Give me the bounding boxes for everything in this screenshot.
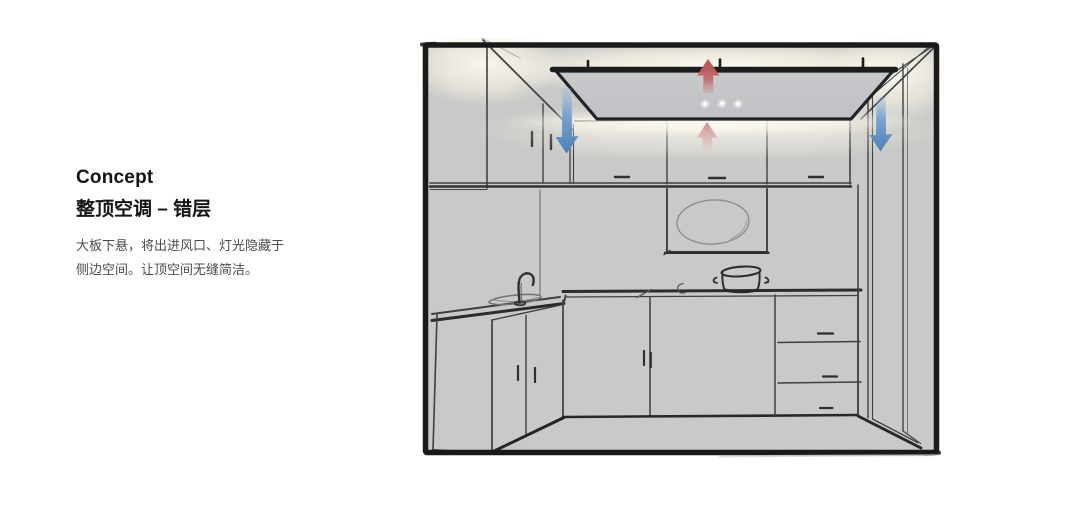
panel-indicator-lights (701, 99, 743, 109)
concept-text-block: Concept 整顶空调 – 错层 大板下悬，将出进风口、灯光隐藏于 侧边空间。… (76, 165, 336, 282)
kitchen-sketch-svg (420, 38, 944, 462)
slide-canvas: Concept 整顶空调 – 错层 大板下悬，将出进风口、灯光隐藏于 侧边空间。… (0, 0, 1080, 523)
description-line-1: 大板下悬，将出进风口、灯光隐藏于 (76, 234, 336, 258)
suspended-ac-panel (553, 59, 896, 120)
concept-heading: Concept (76, 165, 336, 191)
concept-description: 大板下悬，将出进风口、灯光隐藏于 侧边空间。让顶空间无缝简洁。 (76, 234, 336, 282)
kitchen-concept-sketch (420, 38, 944, 462)
concept-subheading: 整顶空调 – 错层 (76, 195, 336, 225)
description-line-2: 侧边空间。让顶空间无缝简洁。 (76, 258, 336, 282)
